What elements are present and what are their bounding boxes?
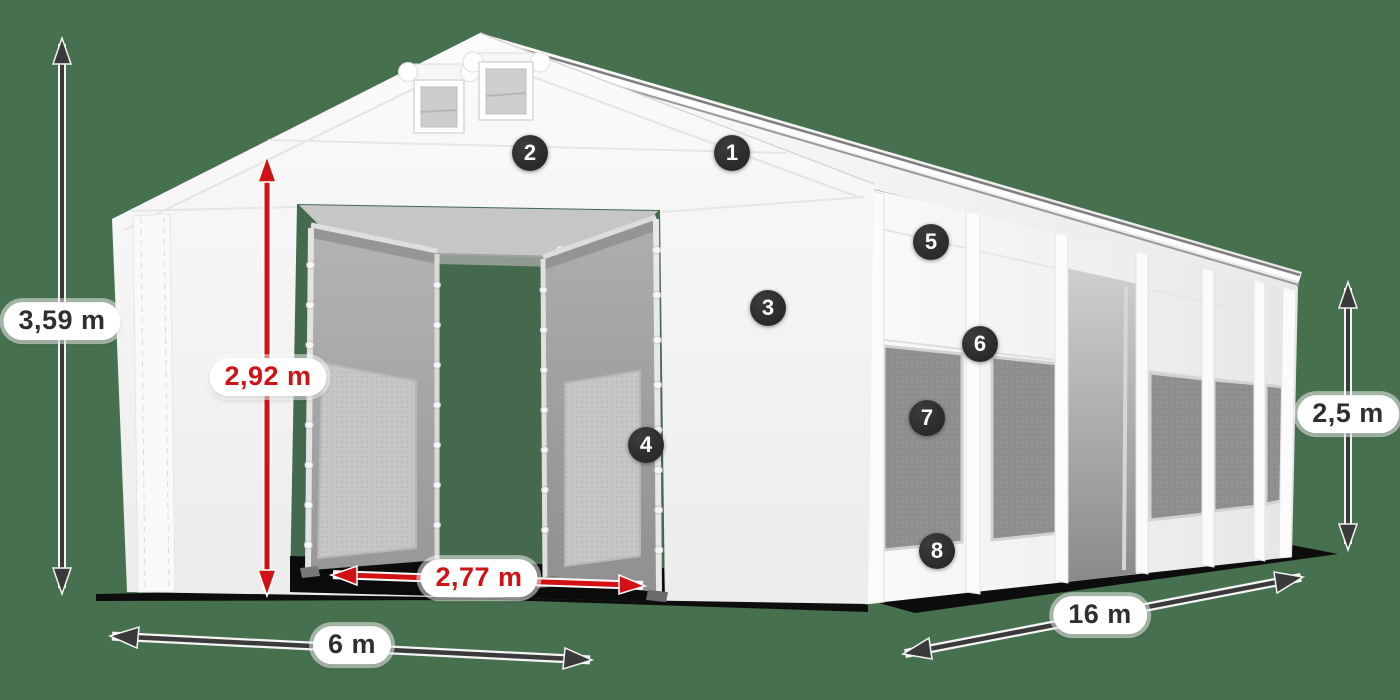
side-door-opening [1066,268,1138,582]
feature-marker-3[interactable]: 3 [750,290,786,326]
dimension-label-tent-length: 16 m [1053,596,1147,634]
feature-marker-7[interactable]: 7 [909,400,945,436]
feature-marker-6[interactable]: 6 [962,326,998,362]
feature-marker-5[interactable]: 5 [913,224,949,260]
feature-marker-4[interactable]: 4 [628,427,664,463]
feature-marker-2[interactable]: 2 [512,135,548,171]
feature-marker-8[interactable]: 8 [919,533,955,569]
dimension-label-side-height: 2,5 m [1297,395,1399,433]
dimension-label-total-height: 3,59 m [3,302,120,340]
tent-illustration [0,0,1400,700]
product-visualization: 3,59 m 2,92 m 2,77 m 6 m 16 m 2,5 m 1 2 … [0,0,1400,700]
entrance-door-left [300,225,441,578]
front-corner-strap [133,214,175,592]
door-mesh-window [318,363,416,558]
dimension-label-tent-width: 6 m [313,626,391,664]
front-entrance [290,204,668,602]
feature-marker-1[interactable]: 1 [714,135,750,171]
entrance-door-right [536,217,668,602]
dimension-label-entrance-height: 2,92 m [209,358,326,396]
door-mesh-window [565,371,640,566]
dimension-label-entrance-width: 2,77 m [420,559,537,597]
